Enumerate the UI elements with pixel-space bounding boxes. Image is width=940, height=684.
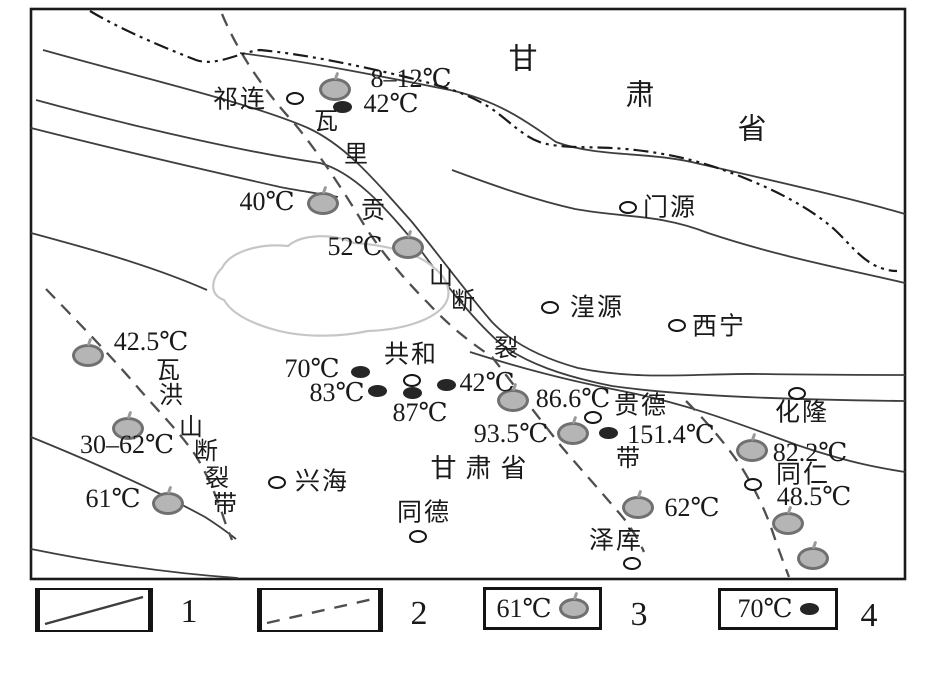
vent-temperature-label: 87℃: [392, 400, 447, 426]
wahongshan-fault-zone-name-char: 瓦: [156, 359, 180, 383]
spring-temperature-label: 82.2℃: [773, 440, 848, 466]
hot-spring-marker: [557, 422, 589, 445]
spring-temperature-label: 52℃: [327, 234, 382, 260]
city-marker: [668, 319, 686, 332]
spring-temperature-label: 48.5℃: [777, 484, 852, 510]
legend-number-4: 4: [861, 599, 878, 633]
hot-spring-marker: [622, 496, 654, 519]
city-marker: [623, 557, 641, 570]
wariggongshan-fault-zone-name-char: 裂: [494, 337, 518, 361]
wariggongshan-fault-zone-name-char: 带: [616, 447, 640, 471]
wahongshan-fault-zone-name-char: 山: [179, 416, 203, 440]
legend-number-1: 1: [181, 595, 198, 629]
city-name-label: 西宁: [692, 315, 746, 340]
legend-spring-temp: 61℃: [496, 596, 551, 622]
city-marker: [541, 301, 559, 314]
wariggongshan-fault-zone-name-char: 山: [429, 265, 453, 289]
spring-temperature-label: 42.5℃: [114, 329, 189, 355]
hot-spring-icon: [559, 598, 589, 619]
province-name-char: 肃: [625, 82, 654, 111]
wariggongshan-fault-zone-name-char: 贡: [361, 199, 385, 223]
hot-vent-marker: [437, 379, 456, 391]
city-name-label: 泽库: [589, 529, 643, 554]
wahongshan-fault-zone-name-char: 带: [213, 493, 237, 517]
hot-vent-marker: [351, 366, 370, 378]
spring-temperature-label: 86.6℃: [536, 386, 611, 412]
city-marker: [619, 201, 637, 214]
spring-temperature-label: 93.5℃: [474, 421, 549, 447]
legend-vent-temp: 70℃: [737, 596, 792, 622]
province-name-char: 甘: [508, 46, 537, 75]
wariggongshan-fault-zone-name-char: 瓦: [314, 110, 338, 134]
geothermal-map-figure: 甘肃省甘肃省祁连门源湟源西宁共和贵德兴海同德泽库同仁化隆8–12℃40℃52℃4…: [0, 0, 940, 684]
hot-vent-marker: [599, 427, 618, 439]
spring-temperature-label: 61℃: [85, 486, 140, 512]
legend-box-dashed-fault: [257, 588, 383, 632]
legend-number-2: 2: [411, 597, 428, 631]
city-marker: [286, 92, 304, 105]
legend-number-3: 3: [631, 598, 648, 632]
spring-temperature-label: 40℃: [239, 189, 294, 215]
city-marker: [788, 387, 806, 400]
city-marker: [268, 476, 286, 489]
hot-spring-marker: [72, 344, 104, 367]
hot-vent-marker: [368, 385, 387, 397]
city-name-label: 共和: [384, 343, 438, 368]
hot-vent-icon: [800, 603, 819, 615]
city-name-label: 门源: [643, 196, 697, 221]
wariggongshan-fault-zone-name-char: 断: [451, 290, 475, 314]
province-name-char: 省: [737, 116, 766, 145]
hot-spring-marker: [307, 192, 339, 215]
hot-spring-marker: [772, 512, 804, 535]
wahongshan-fault-zone-name-char: 断: [194, 440, 218, 464]
city-name-label: 同德: [397, 501, 451, 526]
city-marker: [403, 374, 421, 387]
vent-temperature-label: 151.4℃: [627, 422, 715, 448]
city-name-label: 化隆: [775, 401, 829, 426]
dashed-line-sample-icon: [264, 593, 376, 627]
solid-line-sample-icon: [42, 593, 146, 627]
hot-spring-marker: [152, 492, 184, 515]
city-name-label: 湟源: [570, 296, 624, 321]
hot-spring-marker: [319, 78, 351, 101]
hot-spring-marker: [797, 547, 829, 570]
wahongshan-fault-zone-name-char: 洪: [159, 384, 183, 408]
vent-temperature-label: 42℃: [363, 91, 418, 117]
hot-spring-marker: [736, 439, 768, 462]
marker-layer: 甘肃省甘肃省祁连门源湟源西宁共和贵德兴海同德泽库同仁化隆8–12℃40℃52℃4…: [0, 0, 940, 684]
city-name-label: 兴海: [295, 470, 349, 495]
spring-temperature-label: 30–62℃: [80, 432, 174, 458]
vent-temperature-label: 83℃: [309, 380, 364, 406]
region-name-label: 甘肃省: [430, 456, 535, 482]
spring-temperature-label: 62℃: [664, 495, 719, 521]
legend-box-hot-vent: 70℃: [718, 588, 838, 630]
city-marker: [744, 478, 762, 491]
city-name-label: 贵德: [614, 394, 668, 419]
city-name-label: 祁连: [213, 88, 267, 113]
legend-box-hot-spring: 61℃: [483, 587, 602, 630]
vent-temperature-label: 42℃: [459, 370, 514, 396]
wahongshan-fault-zone-name-char: 裂: [205, 467, 229, 491]
city-marker: [409, 530, 427, 543]
hot-spring-marker: [392, 236, 424, 259]
wariggongshan-fault-zone-name-char: 里: [344, 143, 368, 167]
legend-box-fault-line: [35, 588, 153, 632]
